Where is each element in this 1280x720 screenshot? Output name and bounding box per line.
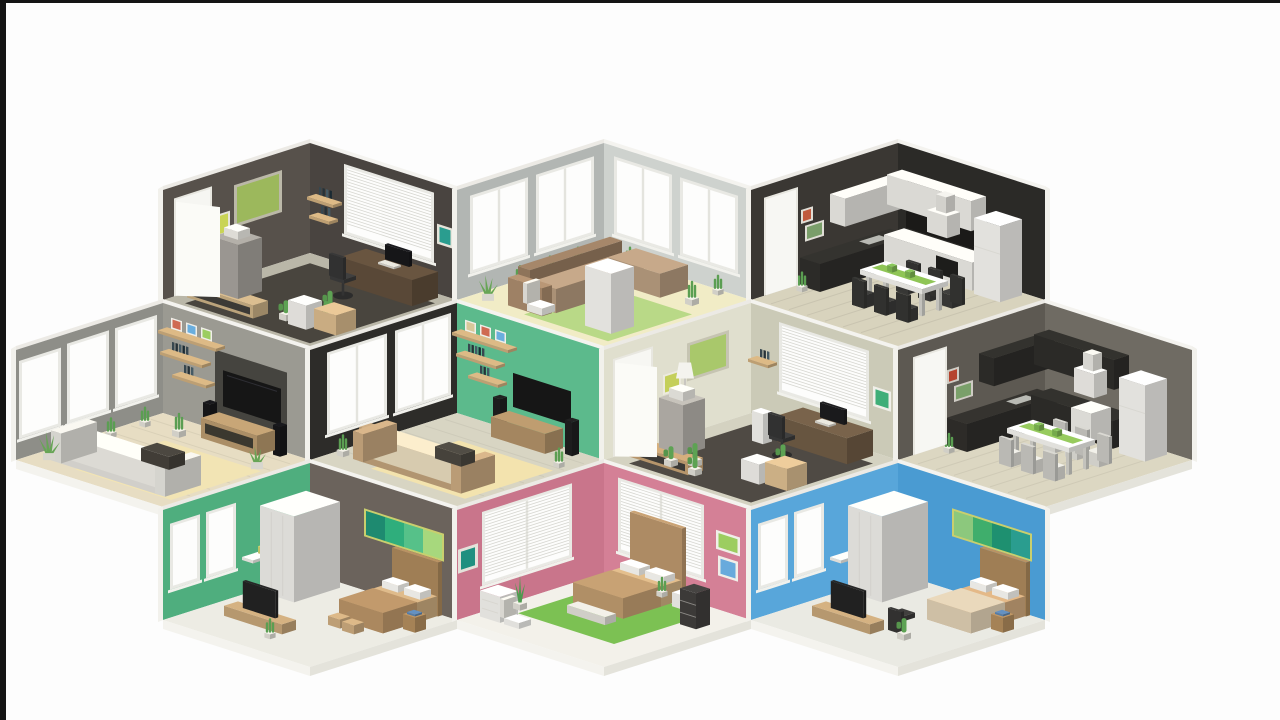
door xyxy=(764,187,798,296)
rendered-scene xyxy=(0,0,1280,720)
open-door xyxy=(613,346,657,457)
letterbox-left-bar xyxy=(0,0,6,720)
window xyxy=(65,330,111,427)
window xyxy=(113,315,159,412)
letterbox-top-bar xyxy=(0,0,1280,3)
wardrobe xyxy=(260,491,340,603)
isometric-rooms-illustration xyxy=(0,0,1280,720)
door xyxy=(913,346,947,455)
window xyxy=(204,503,238,582)
window xyxy=(756,514,790,593)
window xyxy=(792,503,826,582)
window xyxy=(17,348,63,443)
window xyxy=(168,514,202,593)
wardrobe xyxy=(848,491,928,603)
